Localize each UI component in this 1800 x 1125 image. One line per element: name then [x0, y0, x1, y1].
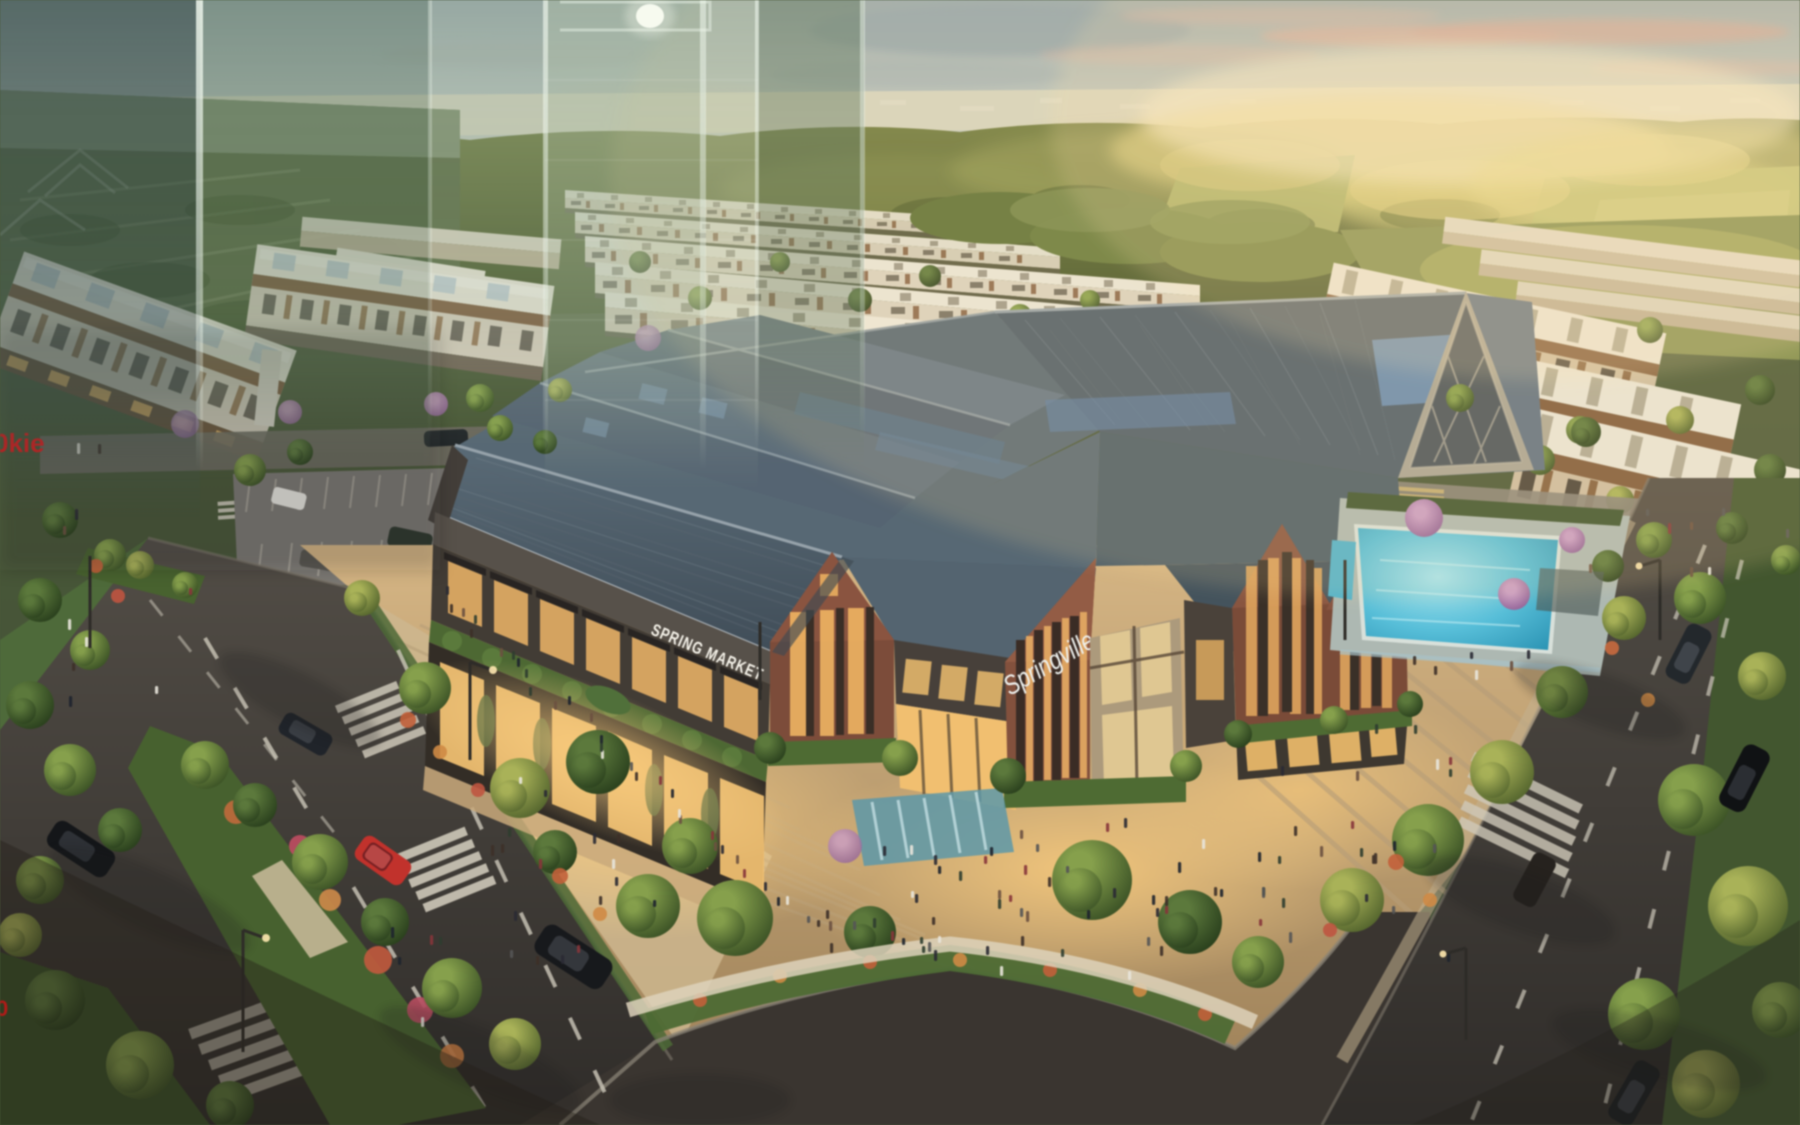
svg-text:0: 0: [0, 996, 8, 1021]
